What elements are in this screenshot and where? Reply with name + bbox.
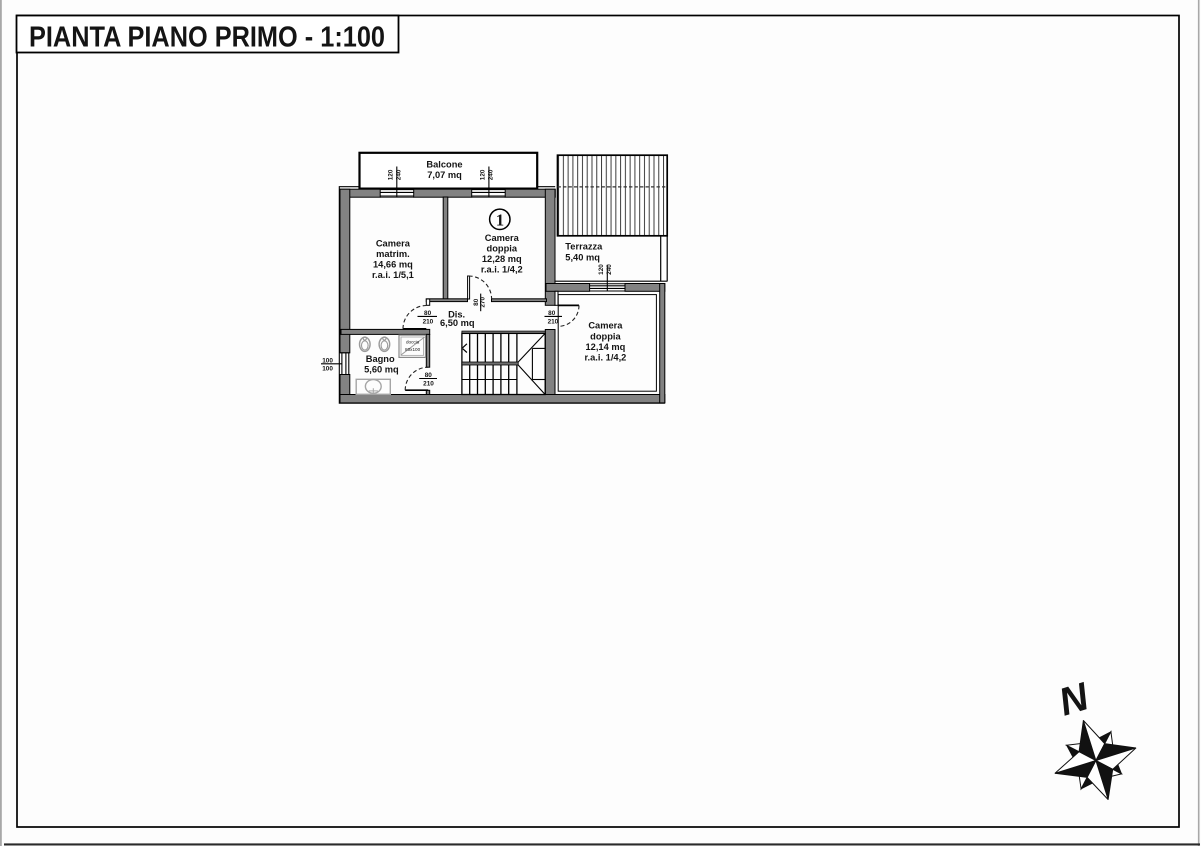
- svg-text:240: 240: [488, 169, 495, 180]
- svg-text:240: 240: [395, 169, 402, 180]
- svg-text:Camera: Camera: [485, 233, 520, 243]
- svg-text:1: 1: [496, 210, 504, 229]
- svg-text:5,40 mq: 5,40 mq: [565, 253, 600, 263]
- svg-text:r.a.i. 1/4,2: r.a.i. 1/4,2: [481, 265, 523, 275]
- svg-text:210: 210: [548, 319, 559, 326]
- svg-text:12,28 mq: 12,28 mq: [482, 254, 522, 264]
- svg-text:Camera: Camera: [588, 321, 623, 331]
- svg-text:Camera: Camera: [376, 239, 411, 249]
- svg-text:r.a.i. 1/5,1: r.a.i. 1/5,1: [372, 270, 414, 280]
- svg-text:doppia: doppia: [590, 331, 621, 341]
- svg-text:doccia: doccia: [406, 340, 420, 345]
- svg-text:matrim.: matrim.: [376, 249, 410, 259]
- svg-text:PIANTA PIANO PRIMO - 1:100: PIANTA PIANO PRIMO - 1:100: [29, 22, 385, 54]
- svg-text:doppia: doppia: [487, 244, 518, 254]
- svg-text:120: 120: [480, 169, 487, 180]
- svg-text:80: 80: [548, 310, 556, 317]
- svg-text:Bagno: Bagno: [366, 354, 395, 364]
- svg-text:Balcone: Balcone: [426, 159, 462, 169]
- svg-text:6,50 mq: 6,50 mq: [440, 318, 475, 328]
- svg-text:120: 120: [388, 169, 395, 180]
- svg-text:270: 270: [480, 297, 487, 308]
- svg-text:Terrazza: Terrazza: [565, 242, 603, 252]
- svg-text:14,66 mq: 14,66 mq: [373, 260, 413, 270]
- svg-text:80x100: 80x100: [405, 347, 421, 352]
- svg-text:100: 100: [322, 366, 333, 373]
- svg-text:120: 120: [598, 264, 605, 275]
- svg-text:7,07 mq: 7,07 mq: [427, 170, 462, 180]
- svg-text:r.a.i. 1/4,2: r.a.i. 1/4,2: [584, 353, 626, 363]
- svg-text:240: 240: [606, 264, 613, 275]
- svg-text:210: 210: [423, 319, 434, 326]
- svg-text:100: 100: [322, 357, 333, 364]
- svg-text:80: 80: [425, 372, 433, 379]
- svg-text:5,60 mq: 5,60 mq: [364, 365, 399, 375]
- svg-text:80: 80: [424, 310, 432, 317]
- svg-text:210: 210: [423, 381, 434, 388]
- svg-text:12,14 mq: 12,14 mq: [586, 342, 626, 352]
